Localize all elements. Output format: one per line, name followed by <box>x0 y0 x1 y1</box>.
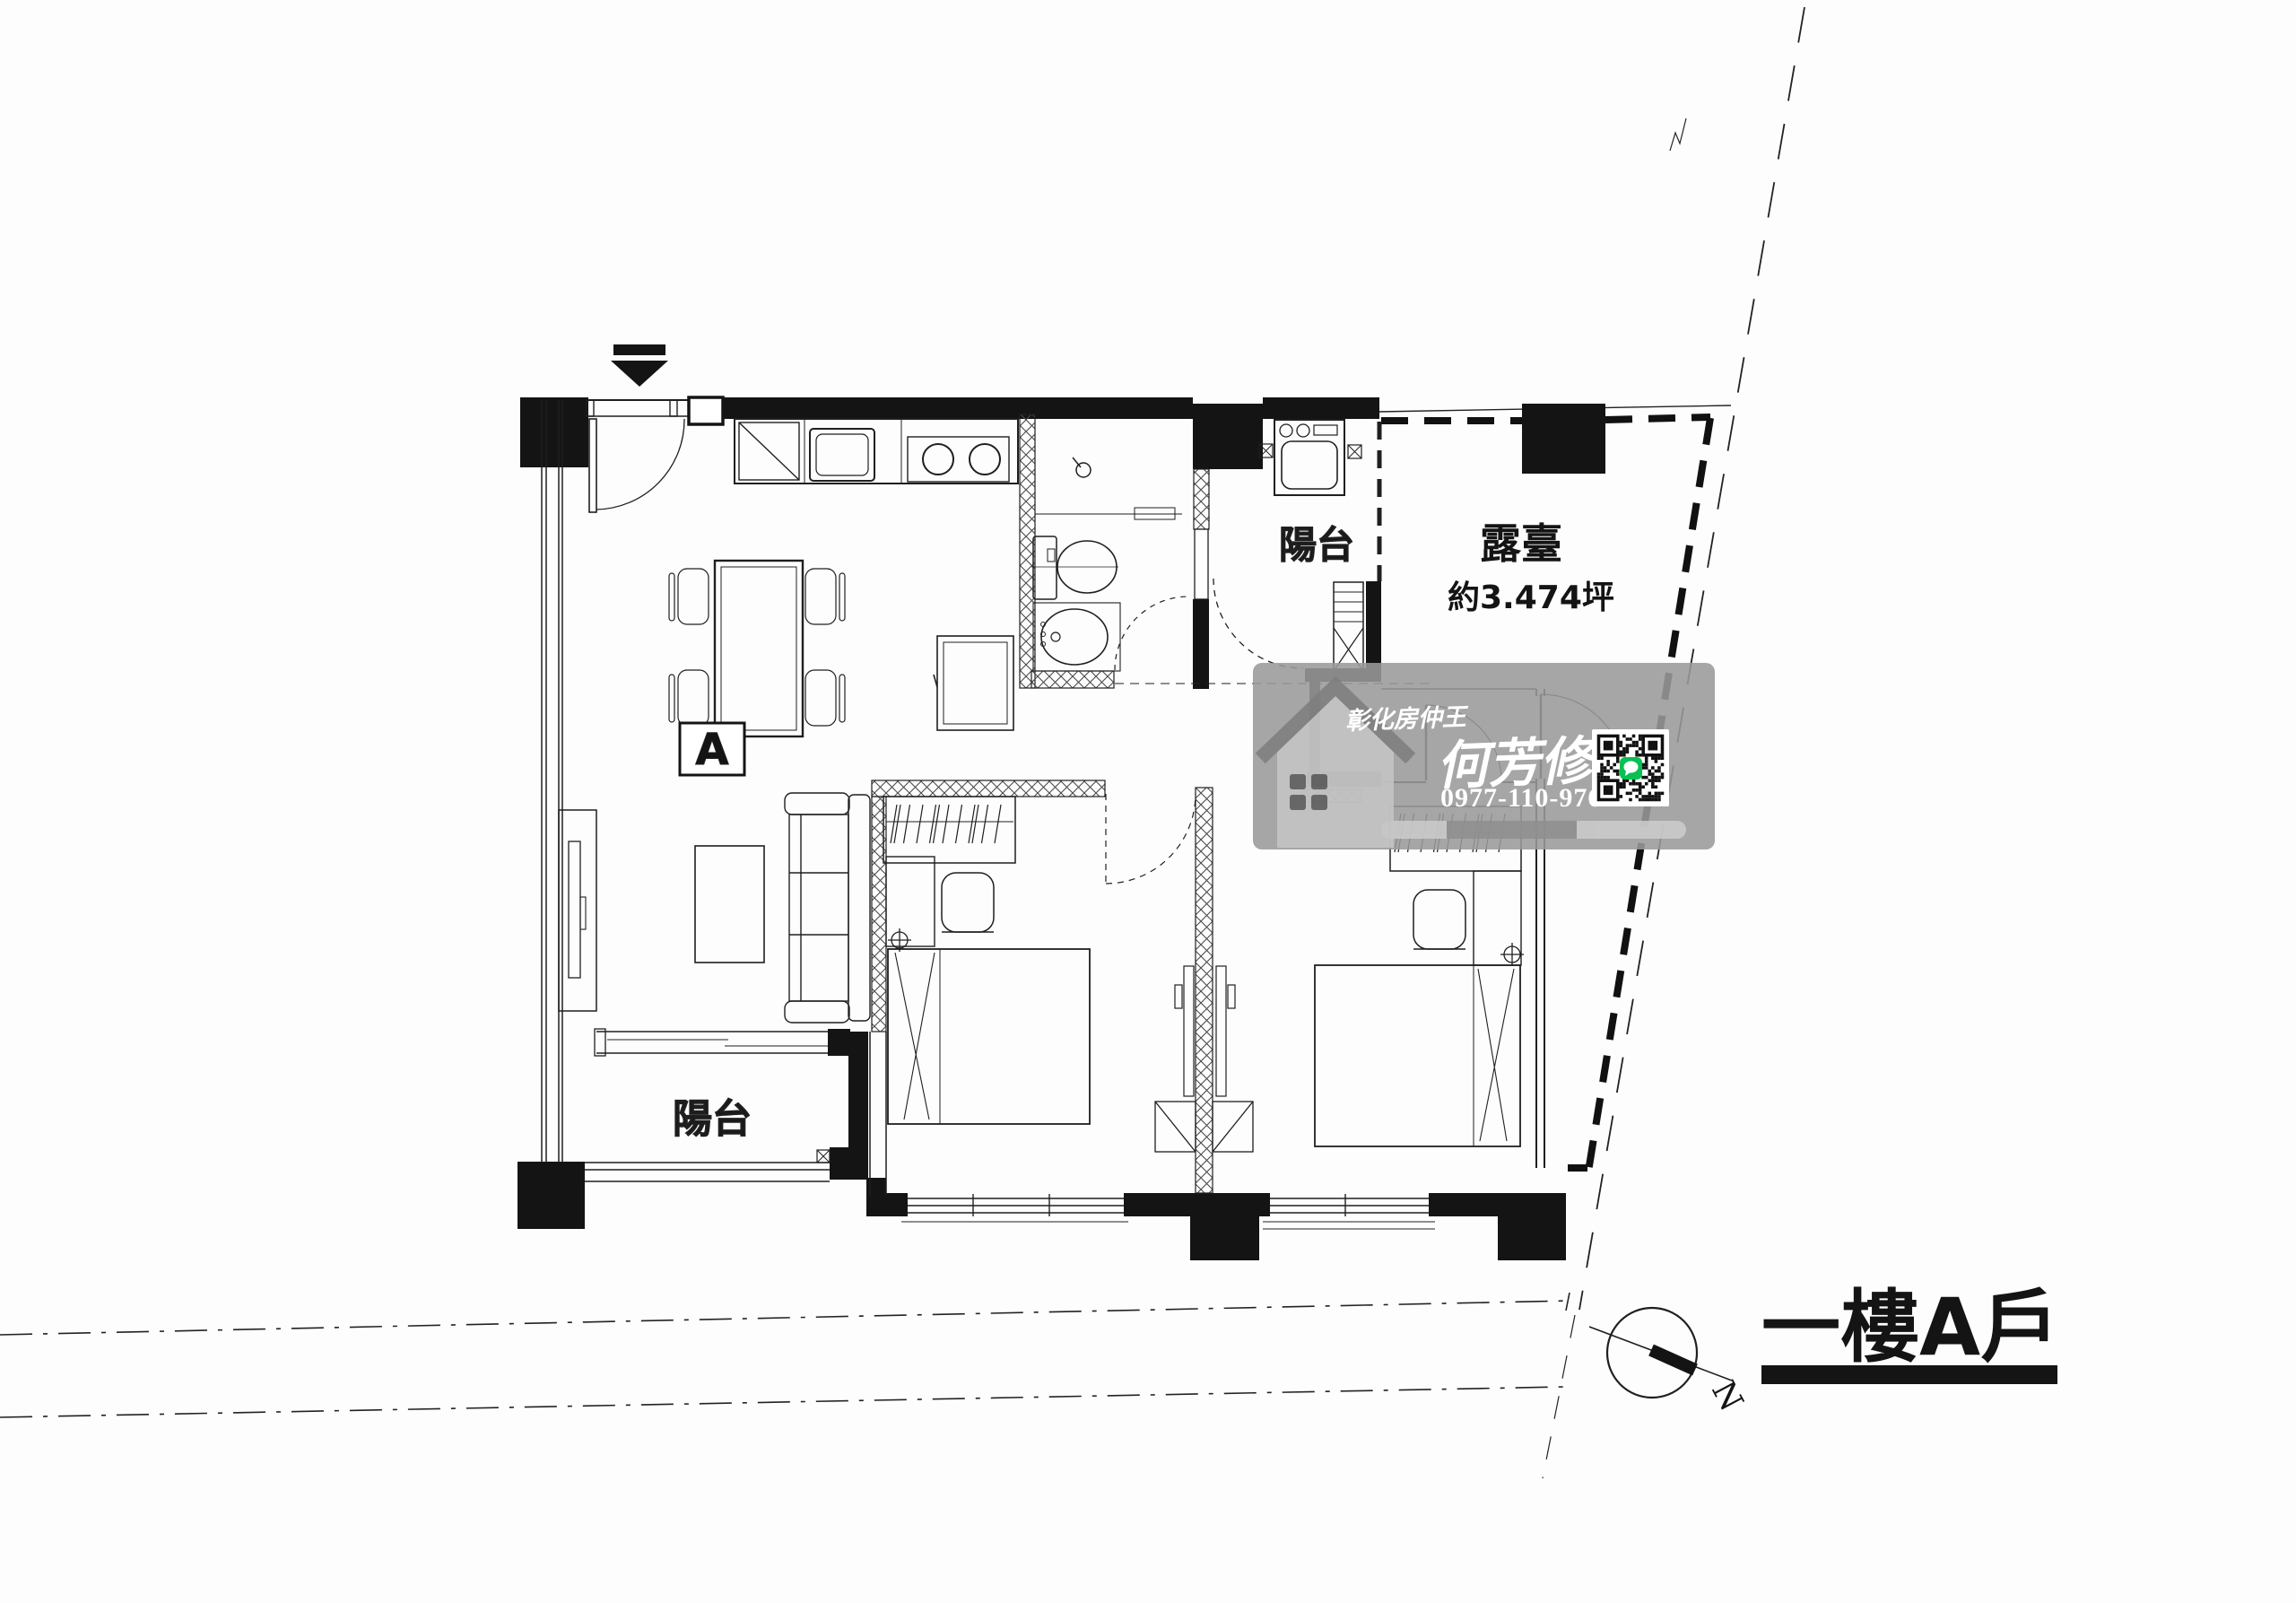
dining-table-icon <box>715 561 803 736</box>
wall-bedroom1-top-hatched <box>872 780 1105 797</box>
watermark: 彰化房仲王 何芳修 0977-110-976 <box>1253 663 1715 849</box>
nightstand-bedroom2 <box>1474 871 1521 965</box>
sink-icon <box>810 429 874 481</box>
faucet-symbol <box>1500 943 1524 966</box>
bath-sink-icon <box>1033 603 1120 671</box>
bedroom1-door <box>1106 794 1196 884</box>
entry-door <box>589 419 684 512</box>
terrace-label: 露臺 <box>1480 519 1562 568</box>
plan-title-underline <box>1761 1365 2057 1384</box>
shower-head-icon <box>1073 457 1091 477</box>
column-top-left <box>520 397 588 467</box>
wall-bath-bottom-hatched <box>1031 671 1114 688</box>
fridge-icon <box>739 423 799 480</box>
wall-top-balcony <box>1263 397 1379 419</box>
nightstand-bedroom1 <box>886 857 935 946</box>
bed-bedroom1 <box>888 949 1090 1124</box>
road-centerline-lower <box>0 1387 1564 1417</box>
compass-needle-bar <box>1651 1350 1695 1370</box>
plan-title: 一樓A戶 <box>1761 1281 2059 1384</box>
bedroom-1 <box>830 780 1253 1195</box>
water-heater-icon <box>1334 582 1363 671</box>
faucet-symbol <box>888 928 911 952</box>
road-centerline-upper <box>0 1301 1570 1335</box>
pen-scribble <box>1670 118 1686 151</box>
stove-icon <box>908 437 1009 482</box>
floor-plan-page: 陽台 露臺 約3.474坪 A <box>0 0 2296 1603</box>
road-line-end-tick <box>1566 1293 1570 1311</box>
plan-title-text: 一樓A戶 <box>1761 1281 2059 1373</box>
terrace-area-label: 約3.474坪 <box>1448 579 1614 616</box>
balcony-top-label: 陽台 <box>1279 523 1354 567</box>
kitchen <box>735 419 1018 730</box>
line-qr-code <box>1592 729 1669 806</box>
coffee-table-icon <box>695 846 764 963</box>
window-bedroom1 <box>901 1194 1128 1222</box>
faucet-box-icon <box>817 1150 830 1163</box>
toilet-icon <box>1031 536 1118 599</box>
watermark-brand: 彰化房仲王 <box>1344 703 1470 736</box>
wall-central-hatched <box>1196 788 1213 1193</box>
bathroom <box>1020 414 1209 689</box>
wall-bath-right-solid <box>1193 599 1209 689</box>
bathroom-door-arc <box>1115 597 1188 670</box>
balcony-bottom-label: 陽台 <box>673 1096 752 1142</box>
closet-bedroom1 <box>883 797 1015 863</box>
living-dining: A <box>559 561 870 1056</box>
tv-console-icon <box>559 810 596 1011</box>
unit-marker-label: A <box>695 725 728 775</box>
balcony-bottom: 陽台 <box>585 1096 830 1181</box>
wall-bath-right-hatched <box>1194 469 1209 529</box>
pocket-door <box>1195 529 1208 599</box>
sofa-icon <box>785 793 870 1023</box>
wall-left-outer <box>542 400 562 1163</box>
column-bottom-left <box>517 1162 585 1229</box>
hanger-icons <box>891 805 1001 843</box>
entry-threshold <box>689 397 723 424</box>
pillow-bedroom2 <box>1413 890 1465 949</box>
column-top-middle <box>1193 404 1263 469</box>
wall-bottom <box>866 1178 1498 1229</box>
pillow-bedroom1 <box>942 873 994 932</box>
entry-arrow-icon <box>611 344 668 387</box>
balcony-door-arc <box>1213 579 1303 668</box>
column-bottom-right <box>1498 1193 1566 1260</box>
living-balcony-window <box>595 1029 850 1056</box>
compass: N <box>1589 1308 1750 1417</box>
dining-chair-icon <box>669 569 845 726</box>
column-bottom-middle <box>1190 1193 1259 1260</box>
bed-bedroom2 <box>1315 965 1520 1146</box>
unit-marker-box: A <box>680 723 744 775</box>
column-top-right <box>1522 404 1605 474</box>
washing-machine-icon <box>1274 420 1344 495</box>
wall-top-kitchen <box>723 397 1193 419</box>
watermark-phone: 0977-110-976 <box>1440 783 1602 813</box>
floor-plan-canvas: 陽台 露臺 約3.474坪 A <box>0 0 2296 1603</box>
window-bedroom2 <box>1263 1194 1435 1229</box>
kitchen-cabinet <box>934 636 1013 730</box>
terrace: 露臺 約3.474坪 <box>1448 519 1614 616</box>
north-label: N <box>1704 1375 1750 1417</box>
